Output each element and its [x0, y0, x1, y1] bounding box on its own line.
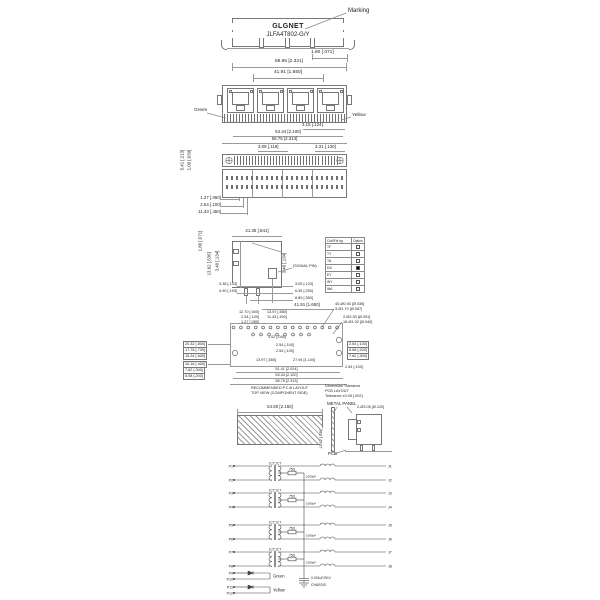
- pin-label: P1: [229, 464, 233, 468]
- pin-label: J3: [388, 491, 392, 495]
- ratio-label: 1CT:1CT: [269, 548, 282, 552]
- resistor-label: 75Ω: [289, 468, 296, 472]
- pin-label: P4: [229, 505, 233, 509]
- yellow-led-label: Yellow: [273, 588, 286, 593]
- marking-leader: [305, 13, 346, 29]
- cap-note-label: 1000pF: [306, 534, 316, 538]
- ratio-label: 1CT:1CT: [269, 462, 282, 466]
- magnetics-channel: 1CT:1CT 75Ω 1000pF P3 P4 J3 J4: [229, 489, 392, 510]
- screw-posts: [226, 157, 343, 163]
- pcb-pads-row2: [252, 333, 311, 336]
- magnetics-channel: 1CT:1CT 75Ω 1000pF P1 P2 J1 J2: [229, 462, 392, 483]
- pin-label: P2: [229, 478, 233, 482]
- green-led-label: Green: [273, 574, 285, 579]
- pin-label: J8: [388, 564, 392, 568]
- panel-leader: [333, 407, 337, 414]
- yellow-leader: [341, 117, 351, 120]
- cap-note-label: 1000pF: [306, 475, 316, 479]
- pin-label: P6: [229, 537, 233, 541]
- pin-label: J5: [388, 523, 392, 527]
- signal-pin-leader: [278, 268, 292, 272]
- led-circuit-yellow: P11 P12 Yellow: [227, 585, 286, 595]
- magnetics-channel: 1CT:1CT 75Ω 1000pF P5 P6 J5 J6: [229, 521, 392, 542]
- pin-label: P3: [229, 491, 233, 495]
- pin-label: P12: [227, 591, 233, 595]
- led-circuit-green: P9 P10 Green: [227, 571, 286, 581]
- pin-label: P10: [227, 577, 233, 581]
- pin-label: P7: [229, 550, 233, 554]
- schematic: 0.001uF/2KV CHASSIS 1CT:1CT 75Ω 1000pF P…: [228, 461, 403, 599]
- resistor-label: 75Ω: [289, 554, 296, 558]
- pin-label: P8: [229, 564, 233, 568]
- pin-label: J2: [388, 478, 392, 482]
- side-diagonal: [252, 243, 281, 252]
- pin-label: P11: [227, 585, 233, 589]
- green-leader: [207, 113, 226, 118]
- cap-note-label: 1000pF: [306, 561, 316, 565]
- pcb-leader: [334, 450, 346, 454]
- pin-label: J1: [388, 464, 392, 468]
- pin-label: J4: [388, 505, 392, 509]
- cap-note-label: 1000pF: [306, 502, 316, 506]
- datasheet-drawing: GLGNET JLFA4T802-G/Y Marking 1.80 [.071]…: [0, 0, 600, 600]
- magnetics-channel: 1CT:1CT 75Ω 1000pF P7 P8 J7 J8: [229, 548, 392, 569]
- ratio-label: 1CT:1CT: [269, 489, 282, 493]
- callout-b-leader: [333, 322, 342, 334]
- pin-label: P9: [229, 571, 233, 575]
- callout-a-leader: [322, 309, 334, 327]
- pin-label: J7: [388, 550, 392, 554]
- pin-label: P5: [229, 523, 233, 527]
- pcb-mounting-holes: [232, 337, 341, 355]
- resistor-label: 75Ω: [289, 527, 296, 531]
- pin-label: J6: [388, 537, 392, 541]
- cap-value-label: 0.001uF/2KV: [311, 576, 332, 580]
- chassis-label: CHASSIS: [311, 583, 327, 587]
- resistor-label: 75Ω: [289, 495, 296, 499]
- ratio-label: 1CT:1CT: [269, 521, 282, 525]
- panel-leader: [347, 407, 352, 413]
- chassis-cap-circuit: 0.001uF/2KV CHASSIS: [299, 473, 332, 587]
